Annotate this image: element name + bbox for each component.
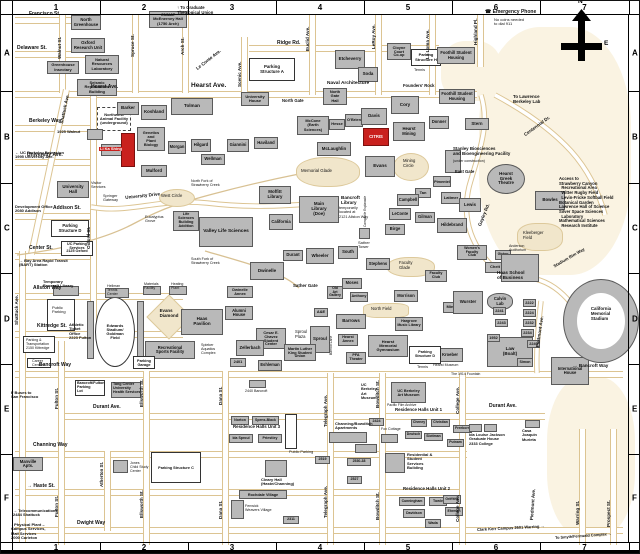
building-valley-life-sciences: Valley Life Sciences bbox=[199, 217, 253, 247]
building-davidson: Davidson bbox=[403, 509, 425, 518]
grid-col-3: 3 bbox=[230, 543, 234, 552]
building-label: Bowles bbox=[542, 198, 557, 203]
building-university-house: University House bbox=[241, 92, 269, 106]
label-residence-halls-unit-1: Residence Halls Unit 1 bbox=[395, 408, 442, 413]
building-label: Eshleman bbox=[260, 363, 279, 367]
label-durant-ave: Durant Ave. bbox=[489, 404, 517, 410]
building-2519: 2519 bbox=[315, 456, 330, 464]
building-label: Morgan bbox=[170, 145, 185, 149]
building-oxford-research-unit: Oxford Research Unit bbox=[71, 38, 105, 53]
label-residence-halls-unit-2: Residence Halls Unit 2 bbox=[403, 487, 450, 492]
building-label: Dwinelle bbox=[258, 269, 276, 274]
label-euclid-ave: Euclid Ave. bbox=[305, 27, 310, 51]
building-shape bbox=[525, 420, 540, 428]
building-label: Freeborn bbox=[455, 427, 470, 431]
building-2527: 2527 bbox=[347, 476, 362, 484]
building-shape bbox=[285, 414, 297, 449]
building-haas-pavilion: Haas Pavilion bbox=[181, 309, 223, 335]
building-label: 2241 bbox=[495, 309, 503, 313]
building-hearst-annex: Hearst Annex bbox=[338, 334, 358, 346]
label-bancroft-way: → Bancroft Way bbox=[573, 363, 608, 368]
building-parking-garage: Parking Garage bbox=[133, 356, 155, 369]
label-f-buses-to-san-francisco: F Buses to San Francisco bbox=[11, 391, 38, 400]
building-label: University House bbox=[245, 95, 264, 103]
label-oxford-st: Oxford St. bbox=[86, 227, 91, 249]
building-label: Haas Pavilion bbox=[193, 317, 210, 326]
building-latimer: Latimer bbox=[441, 192, 461, 204]
building-2222: 2222 bbox=[523, 299, 536, 307]
building-label: Campbell bbox=[399, 198, 417, 202]
building-label: Barrows bbox=[342, 319, 360, 324]
label-spruce-st: Spruce St. bbox=[130, 34, 135, 57]
building-christian: Christian bbox=[431, 419, 450, 427]
grid-tick bbox=[629, 14, 640, 15]
label-kleeberger-field: Kleeberger Field bbox=[523, 231, 544, 240]
building-shape bbox=[578, 19, 585, 61]
building-rochdale-village: Rochdale Village bbox=[239, 490, 287, 499]
label-berkeley-way: Berkeley Way bbox=[29, 119, 61, 125]
building-tolman: Tolman bbox=[171, 98, 213, 115]
building-label: Calvin Lab bbox=[494, 297, 506, 306]
building-label: Old Art Gallery bbox=[329, 287, 341, 298]
building-leconte: LeConte bbox=[389, 208, 411, 220]
label-cleary-hall-haste-channing: Cleary Hall (Haste/Channing) bbox=[261, 478, 294, 487]
label-atherton-st: Atherton St. bbox=[100, 462, 105, 487]
building-cloyne-court-co-op: Cloyne Court Co-op bbox=[387, 43, 411, 60]
building-label: North Greenhouse bbox=[74, 18, 98, 27]
building-parking-structure-a: Parking Structure A bbox=[249, 58, 295, 81]
label-memorial-glade: Memorial Glade bbox=[301, 169, 332, 174]
building-shape bbox=[87, 129, 103, 140]
building-label: Recreational Sports Facility bbox=[156, 346, 184, 355]
label-founders-rock: Founders' Rock bbox=[403, 84, 434, 89]
building-morgan: Morgan bbox=[168, 141, 186, 154]
label-california-memorial-stadium: California Memorial Stadium bbox=[591, 307, 611, 322]
label-materials-facility: Materials Facility bbox=[144, 282, 159, 290]
building-label: Etcheverry bbox=[339, 57, 362, 62]
grid-row-D: D bbox=[4, 314, 10, 323]
label-telegraph-ave: Telegraph Ave. bbox=[323, 395, 328, 427]
label-public-parking: Public Parking bbox=[289, 450, 313, 454]
grid-tick bbox=[100, 1, 101, 14]
label-sather-gate: Sather Gate bbox=[293, 284, 318, 289]
grid-tick bbox=[629, 1, 630, 14]
building-label: Soda bbox=[363, 72, 374, 77]
building-shape bbox=[359, 228, 370, 239]
building-label: California bbox=[271, 220, 290, 224]
label-bay-area-rapid-transit-bart-station: → Bay Area Rapid Transit (BART) Station bbox=[19, 259, 68, 268]
map-frame bbox=[12, 14, 629, 15]
building-label: Davidson bbox=[406, 512, 422, 516]
building-label: Parking Structure D bbox=[59, 224, 82, 233]
building-label: Spens-Black bbox=[255, 419, 276, 423]
building-soda: Soda bbox=[358, 67, 378, 82]
label-bowditch-st: Bowditch St. bbox=[375, 492, 380, 520]
building-hildebrand: Hildebrand bbox=[437, 218, 467, 233]
label-jones-child-study-center: Jones Child Study Center bbox=[130, 461, 148, 473]
grid-row-E: E bbox=[4, 405, 9, 414]
grid-tick bbox=[188, 1, 189, 14]
building-deutsch: Deutsch bbox=[405, 431, 422, 439]
building-label: University Hall bbox=[62, 185, 83, 194]
label-access-to-strawberry-canyon-recreational: Access to Strawberry Canyon Recreational… bbox=[559, 177, 613, 229]
grid-col-1: 1 bbox=[54, 543, 58, 552]
building-california: California bbox=[269, 214, 293, 230]
building-international-house: International House bbox=[551, 357, 589, 385]
building-shape bbox=[231, 500, 244, 519]
building-moffitt-library: Moffitt Library bbox=[259, 186, 291, 204]
building-label: Hearst Mining bbox=[402, 127, 416, 136]
building-label: Christian bbox=[433, 421, 448, 425]
building-shape bbox=[137, 301, 144, 359]
label-tennis: Tennis bbox=[414, 68, 425, 72]
map-frame bbox=[628, 14, 629, 542]
grid-tick bbox=[276, 1, 277, 14]
building-foothill-student-housing: Foothill Student Housing bbox=[437, 47, 475, 64]
label-bancroft-library: Bancroft Library bbox=[341, 195, 360, 205]
building-label: Tan bbox=[420, 191, 427, 195]
label-faculty-glade: Faculty Glade bbox=[399, 261, 413, 270]
building-simon: Simon bbox=[517, 358, 533, 367]
building-label: Towle bbox=[433, 500, 443, 504]
grid-tick bbox=[1, 14, 12, 15]
building-label: Wada bbox=[428, 522, 437, 526]
building-label: Mulford bbox=[146, 169, 162, 174]
building-label: Hesse bbox=[331, 122, 342, 126]
label-naval-architecture: Naval Architecture bbox=[327, 81, 369, 86]
building-ida-sproul: Ida Sproul bbox=[229, 434, 253, 443]
label-residence-halls-unit-3: Residence Halls Unit 3 bbox=[233, 425, 280, 430]
building-morrison: Morrison bbox=[394, 290, 418, 302]
building-university-hall: University Hall bbox=[57, 181, 89, 198]
building-campbell: Campbell bbox=[397, 194, 419, 206]
grid-row-B: B bbox=[4, 133, 10, 142]
label-no-coins-needed-to-dial-911: No coins needed to dial 911 bbox=[494, 18, 524, 27]
grid-row-C: C bbox=[632, 224, 638, 233]
building-label: Dwinelle Annex bbox=[232, 288, 247, 296]
label-mining-circle: Mining Circle bbox=[403, 159, 415, 168]
building-koshland: Koshland bbox=[141, 105, 167, 120]
grid-row-D: D bbox=[632, 314, 638, 323]
building-cunningham: Cunningham bbox=[399, 497, 425, 506]
building-greenhouse-insectary: Greenhouse Insectary bbox=[47, 61, 79, 74]
label-barrow-lane: Barrow Lane bbox=[330, 336, 334, 355]
building-label: 2311 bbox=[287, 518, 295, 522]
grid-col-4: 4 bbox=[318, 543, 322, 552]
building-gilman: Gilman bbox=[415, 212, 435, 223]
building-parking-structure-d: Parking Structure D bbox=[51, 220, 89, 237]
building-label: Parking Structure C bbox=[158, 466, 194, 470]
grid-tick bbox=[1, 364, 12, 365]
building-martin-luther-king-student-union: Martin Luther King Student Union bbox=[284, 344, 316, 361]
building-label: Wurster bbox=[460, 300, 477, 305]
grid-col-2: 2 bbox=[142, 543, 146, 552]
building-label: Haviland bbox=[257, 141, 274, 145]
building-barrows: Barrows bbox=[336, 314, 366, 329]
building-label: Wheeler bbox=[311, 254, 328, 259]
label-stanley-biosciences-and-bioengineering-f: Stanley Biosciences and Bioengineering F… bbox=[453, 147, 510, 157]
building-life-sciences-building-addition: Life Sciences Building Addition bbox=[173, 211, 199, 231]
building-barker: Barker bbox=[117, 102, 139, 115]
building-label: CITRIS bbox=[369, 135, 383, 139]
building-cheney: Cheney bbox=[411, 419, 427, 427]
building-label: Deutsch bbox=[407, 433, 420, 437]
building-label: Davis bbox=[368, 114, 380, 119]
building-1952: 1952 bbox=[487, 334, 500, 342]
label-delaware-st: Delaware St. bbox=[17, 46, 47, 52]
label-under-construction: (under construction) bbox=[453, 159, 485, 163]
building-hilgard: Hilgard bbox=[191, 139, 211, 152]
building-label: Morrison bbox=[397, 294, 415, 298]
building-label: Hargrove Music Library bbox=[397, 320, 420, 328]
grid-tick bbox=[1, 273, 12, 274]
building-birge: Birge bbox=[385, 224, 405, 235]
building-stephens: Stephens bbox=[366, 258, 390, 270]
grid-tick bbox=[629, 454, 640, 455]
building-shape bbox=[469, 424, 482, 432]
label-haas-school-of-business: Haas School of Business bbox=[497, 270, 525, 280]
building-label: 2519 bbox=[319, 458, 327, 462]
label-kittredge-st: Kittredge St. bbox=[37, 324, 67, 330]
building-label: Women's Faculty Club bbox=[464, 247, 480, 258]
building-label: Law (Boalt) bbox=[503, 347, 517, 356]
building-label: Pimentel bbox=[434, 180, 450, 184]
grid-col-7: 7 bbox=[582, 3, 586, 12]
label-ida-louise-jackson-graduate-house-2333-c: Ida Louise Jackson Graduate House 2333 C… bbox=[469, 433, 505, 446]
label-temporary-bancroft-library: Temporary Bancroft Library bbox=[43, 280, 73, 289]
building-alumni-house: Alumni House bbox=[225, 306, 253, 320]
building-2401: 2401 bbox=[230, 358, 246, 367]
building-shape bbox=[329, 432, 367, 443]
building-dwinelle: Dwinelle bbox=[250, 262, 284, 280]
building-label: Gilman bbox=[418, 215, 432, 219]
label-hearst-museum: Hearst Museum bbox=[433, 363, 458, 367]
building-label: Priestley bbox=[263, 437, 278, 441]
building-label: Giannini bbox=[230, 143, 247, 147]
building-label: Rochdale Village bbox=[248, 493, 278, 497]
building-foothill-student-housing: Foothill Student Housing bbox=[439, 89, 475, 104]
building-mulford: Mulford bbox=[141, 165, 167, 177]
label-athletic-ticket-office-2223-fulton: Athletic Ticket Office 2223 Fulton bbox=[69, 323, 91, 341]
building-wellman: Wellman bbox=[201, 154, 225, 165]
building-label: Ida Sproul bbox=[232, 437, 249, 441]
building-slottman: Slottman bbox=[424, 433, 443, 441]
building-label: UC Parking Services 2125 Oxford bbox=[66, 243, 87, 255]
grid-row-C: C bbox=[4, 224, 10, 233]
label-li-ka-shing: Li Ka Shing bbox=[99, 147, 123, 151]
label-fenwick-weavers-village: Fenwick Weavers Village bbox=[245, 504, 272, 512]
grid-col-1: 1 bbox=[54, 3, 58, 12]
building-label: 2232 bbox=[525, 321, 533, 325]
building-2243: 2243 bbox=[495, 319, 508, 327]
building-north-greenhouse: North Greenhouse bbox=[71, 15, 101, 30]
building-priestley: Priestley bbox=[258, 434, 282, 443]
building-label: Birge bbox=[390, 227, 400, 231]
label-highland-pl: Highland Pl. bbox=[473, 18, 478, 45]
building-pfa-theater: PFA Theater bbox=[346, 352, 366, 364]
building-label: Hearst Memorial Gymnasium bbox=[377, 340, 400, 353]
building-label: Hildebrand bbox=[441, 223, 463, 227]
building-wada: Wada bbox=[425, 519, 441, 528]
label-2440-bancroft: 2440 Bancroft bbox=[245, 389, 267, 393]
building-south: South bbox=[338, 246, 358, 259]
building-label: Koshland bbox=[144, 110, 164, 115]
building-label: Barker bbox=[121, 106, 135, 111]
building-label: Moses bbox=[346, 281, 359, 285]
building-label: Stephens bbox=[369, 262, 387, 266]
label-telecommunications-2484-shattuck: → Telecommunications 2484 Shattuck bbox=[13, 509, 58, 518]
building-label: Main Library (Doe) bbox=[311, 202, 326, 216]
building-label: South bbox=[342, 250, 354, 254]
building-label: Zellerbach bbox=[240, 346, 261, 350]
label-la-loma-ave: La Loma Ave. bbox=[425, 29, 430, 59]
label-ridge-rd: Ridge Rd. bbox=[277, 41, 300, 47]
label-durant-ave: Durant Ave. bbox=[93, 405, 121, 411]
building-label: Cunningham bbox=[402, 500, 423, 504]
grid-col-4: 4 bbox=[318, 3, 322, 12]
label-center-st: Center St. bbox=[29, 246, 53, 252]
building-shape bbox=[265, 460, 287, 477]
building-label: Putnam bbox=[449, 441, 461, 445]
building-label: Oxford Research Unit bbox=[74, 41, 102, 50]
label-east-gate: East Gate bbox=[455, 170, 474, 175]
building-label: Valley Life Sciences bbox=[203, 229, 249, 234]
label-college-ave: College Ave. bbox=[455, 387, 460, 414]
building-giannini: Giannini bbox=[227, 139, 249, 152]
building-uc-berkeley-art-museum: UC Berkeley Art Museum bbox=[391, 382, 426, 403]
building-label: Martin Luther King Student Union bbox=[288, 347, 312, 359]
building-2232: 2232 bbox=[523, 319, 536, 327]
building-label: 2222 bbox=[525, 301, 533, 305]
grid-tick bbox=[452, 1, 453, 14]
building-label: PFA Theater bbox=[349, 354, 362, 362]
building-mclaughlin: McLaughlin bbox=[317, 142, 351, 156]
building-label: Evans bbox=[373, 164, 387, 169]
label-uc-berkeley-art-museum: UC Berkeley Art Museum bbox=[361, 383, 377, 400]
building-shape bbox=[385, 453, 405, 473]
label-sproul-plaza: Sproul Plaza bbox=[295, 330, 307, 339]
building-label: Hearst Greek Theatre bbox=[498, 172, 514, 186]
building-old-art-gallery: Old Art Gallery bbox=[327, 286, 343, 299]
building-label: Genetics and Plant Biology bbox=[143, 131, 159, 147]
building-label: Alumni House bbox=[232, 309, 246, 318]
building-label: Stern bbox=[471, 122, 482, 127]
grid-tick bbox=[12, 1, 13, 14]
building-label: Natural Resources Laboratory bbox=[92, 58, 113, 71]
label-dana-st: Dana St. bbox=[218, 387, 223, 405]
label-bancroft-fulton-parking-lot: Bancroft/Fulton Parking Lot bbox=[77, 381, 104, 393]
label-telegraph-ave: Telegraph Ave. bbox=[323, 486, 328, 518]
grid-tick bbox=[629, 273, 640, 274]
building-north-gate-hall: North Gate Hall bbox=[323, 88, 347, 105]
label-fox-cottage: Fox Cottage bbox=[381, 427, 401, 431]
building-hargrove-music-library: Hargrove Music Library bbox=[395, 317, 423, 331]
grid-tick bbox=[629, 542, 640, 543]
label-spieker-aquatics-complex: Spieker Aquatics Complex bbox=[201, 343, 216, 355]
label-hellman-tennis-center: Hellman Tennis Center bbox=[107, 284, 120, 296]
building-label: Kroeber bbox=[442, 353, 458, 357]
building-edwards-stadium-goldman-field: Edwards Stadium/ Goldman Field bbox=[95, 297, 135, 367]
label-casa-joaquin-murieta: Casa Joaquin Murieta bbox=[522, 429, 537, 442]
building-shape bbox=[561, 43, 602, 50]
label-visitor-services: Visitor Services bbox=[91, 181, 106, 190]
building-lewis: Lewis bbox=[459, 198, 481, 212]
label-west-circle: West Circle bbox=[161, 194, 182, 199]
building-label: Donner bbox=[432, 120, 446, 124]
building-label: Norton bbox=[234, 419, 246, 423]
building-label: Cheney bbox=[413, 421, 425, 425]
grid-row-A: A bbox=[4, 48, 10, 57]
building-label: Manville Apts. bbox=[20, 460, 37, 469]
building-faculty-club: Faculty Club bbox=[425, 270, 447, 282]
building-label: Parking Garage bbox=[137, 359, 151, 367]
building-label: A&E bbox=[317, 310, 325, 314]
building-label: McCone (Earth Sciences) bbox=[304, 119, 322, 131]
label-warring-st: Warring St. bbox=[575, 501, 580, 525]
building-label: North Gate Hall bbox=[330, 90, 340, 102]
label-bancroft-way: Bancroft Way bbox=[39, 363, 71, 369]
building-donner: Donner bbox=[429, 116, 449, 129]
label-leroy-ave: LeRoy Ave. bbox=[371, 24, 376, 49]
building-citris: CITRIS bbox=[363, 128, 389, 146]
building-anthony: Anthony bbox=[350, 292, 368, 302]
label-evans-diamond: Evans Diamond bbox=[160, 309, 179, 319]
map-frame bbox=[12, 14, 13, 542]
label-temporarily-located-at-2121-allston-way: temporarily located at 2121 Allston Way bbox=[339, 206, 368, 219]
building-label: Wellman bbox=[204, 157, 221, 161]
building-mccone-earth-sciences: McCone (Earth Sciences) bbox=[297, 116, 329, 135]
building-label: Hilgard bbox=[194, 143, 208, 147]
building-label: Faculty Club bbox=[430, 272, 443, 280]
building-label: Edwards Stadium/ Goldman Field bbox=[106, 324, 123, 341]
label-tang-center-university-health-services: Tang Center University Health Services bbox=[113, 382, 140, 394]
label-career-center: Career Center bbox=[32, 359, 43, 367]
building-hearst-memorial-gymnasium: Hearst Memorial Gymnasium bbox=[368, 335, 408, 357]
building-label: 2530-38 bbox=[353, 460, 366, 464]
building-manville-apts: Manville Apts. bbox=[13, 457, 43, 471]
label-channing-bowditch-apartments: Channing/Bowditch Apartments bbox=[335, 422, 373, 431]
label-to-lawrence-berkeley-lab: To Lawrence Berkeley Lab bbox=[513, 95, 540, 105]
grid-col-5: 5 bbox=[406, 3, 410, 12]
building-hearst-mining: Hearst Mining bbox=[393, 122, 425, 141]
label-hearst-ave: Hearst Ave. bbox=[191, 82, 226, 89]
building-eshleman: Eshleman bbox=[258, 360, 282, 371]
grid-row-B: B bbox=[632, 133, 638, 142]
grid-row-A: A bbox=[632, 48, 638, 57]
label-parking-transportation-2150-kittredge: Parking & Transportation 2150 Kittredge bbox=[26, 338, 49, 350]
label-south-fork-of-strawberry-creek: South Fork of Strawberry Creek bbox=[191, 257, 220, 265]
label-1925-walnut: 1925 Walnut bbox=[57, 130, 80, 134]
building-label: McLaughlin bbox=[322, 147, 346, 152]
label-public-parking: Public Parking bbox=[52, 306, 66, 315]
building-shape bbox=[121, 133, 135, 167]
building-label: 2234 bbox=[523, 331, 531, 335]
building-label: Anthony bbox=[352, 295, 367, 299]
building-main-library-doe: Main Library (Doe) bbox=[299, 196, 339, 223]
grid-row-F: F bbox=[4, 494, 9, 503]
building-2234: 2234 bbox=[521, 329, 534, 337]
building-2241: 2241 bbox=[493, 307, 506, 315]
label-springer-gateway: Springer Gateway bbox=[103, 194, 118, 203]
building-shape bbox=[381, 434, 398, 443]
building-ehrman: Ehrman bbox=[445, 507, 463, 516]
label-arch-st: Arch St. bbox=[180, 37, 185, 55]
building-label: Cloyne Court Co-op bbox=[393, 46, 406, 58]
grid-col-3: 3 bbox=[230, 3, 234, 12]
grid-row-F: F bbox=[632, 494, 637, 503]
grid-tick bbox=[629, 364, 640, 365]
label-ellsworth-st: Ellsworth St. bbox=[139, 490, 144, 518]
